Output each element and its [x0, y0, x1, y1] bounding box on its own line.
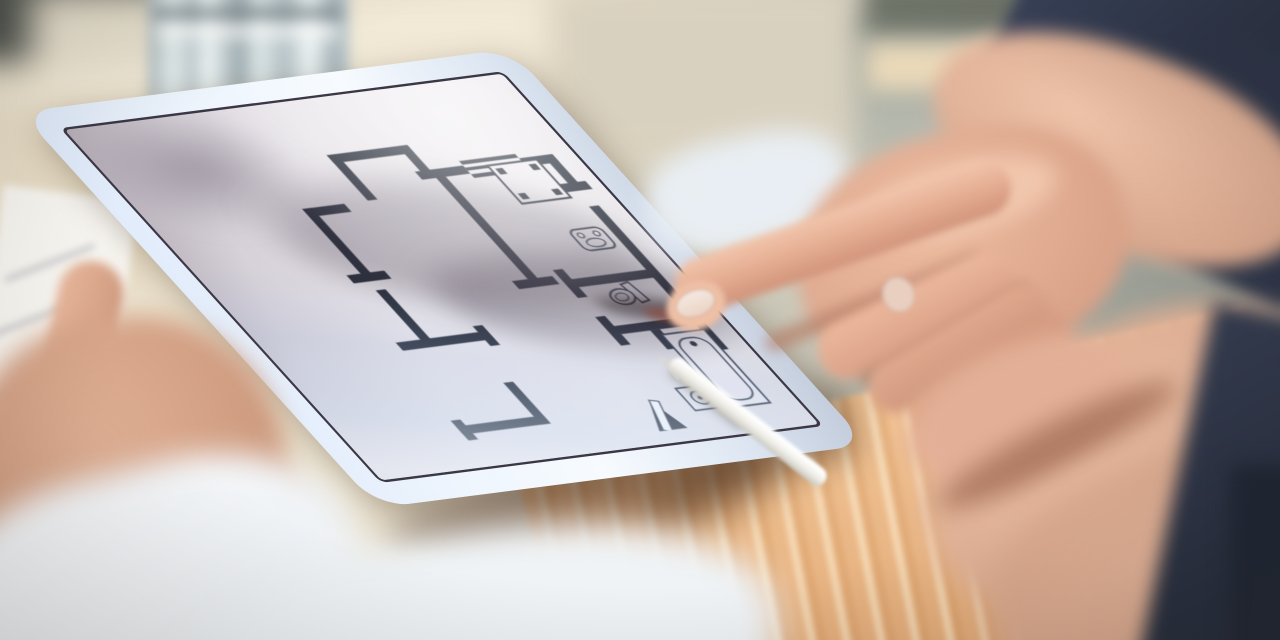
photo-scene: [0, 0, 1280, 640]
vignette: [0, 0, 1280, 640]
